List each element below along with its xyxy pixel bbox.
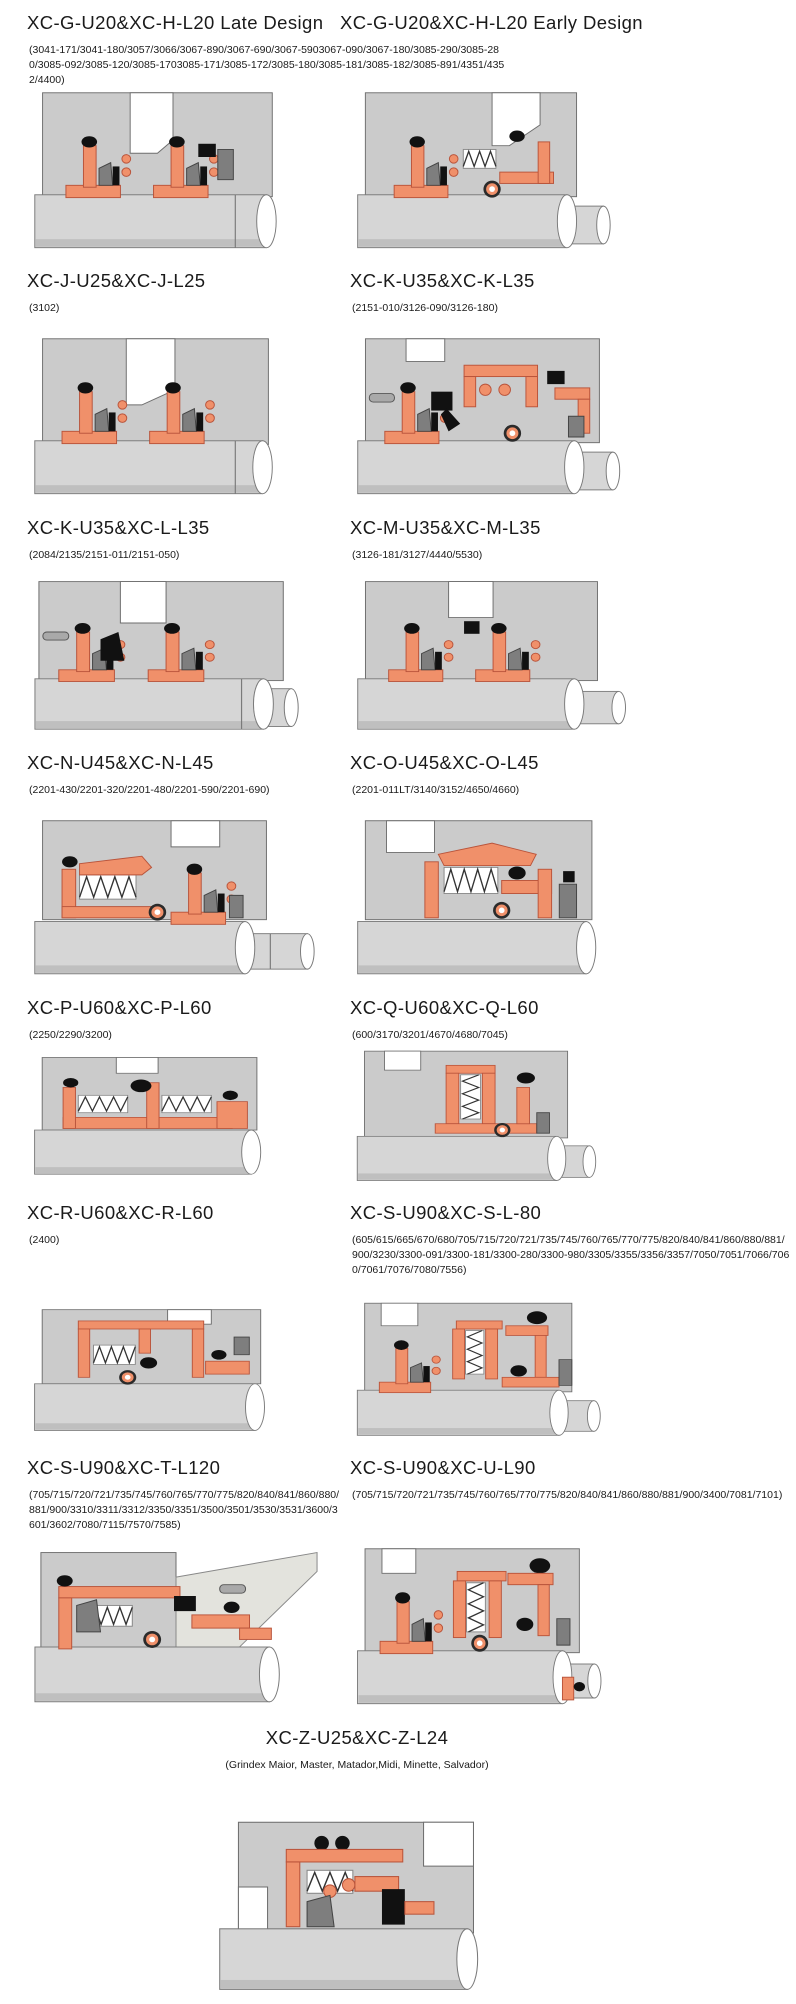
- seal-cross-section-diagram: [27, 1300, 340, 1445]
- section-title: XC-J-U25&XC-J-L25: [27, 270, 340, 292]
- seal-cross-section-diagram: [27, 1545, 340, 1715]
- cell-xc-p: XC-P-U60&XC-P-L60 (2250/2290/3200): [27, 997, 350, 1190]
- model-numbers: (Grindex Maior, Master, Matador,Midi, Mi…: [27, 1758, 687, 1773]
- model-numbers: (2201-011LT/3140/3152/4650/4660): [352, 783, 790, 798]
- model-numbers: (3102): [29, 301, 340, 316]
- cell-xc-q: XC-Q-U60&XC-Q-L60 (600/3170/3201/4670/46…: [350, 997, 790, 1190]
- model-numbers: (2400): [29, 1233, 340, 1248]
- section-title: XC-Q-U60&XC-Q-L60: [350, 997, 790, 1019]
- cell-xc-z: XC-Z-U25&XC-Z-L24 (Grindex Maior, Master…: [27, 1727, 687, 2004]
- section-xc-g-h-l20: XC-G-U20&XC-H-L20 Late Design XC-G-U20&X…: [0, 0, 796, 258]
- seal-cross-section-diagram: [350, 1545, 790, 1715]
- cell-xc-o: XC-O-U45&XC-O-L45 (2201-011LT/3140/3152/…: [350, 752, 790, 985]
- model-numbers-g: (3041-171/3041-180/3057/3066/3067-890/30…: [29, 43, 507, 89]
- section-xc-t-u: XC-S-U90&XC-T-L120 (705/715/720/721/735/…: [0, 1445, 796, 1715]
- section-title: XC-S-U90&XC-T-L120: [27, 1457, 340, 1479]
- model-numbers: (605/615/665/670/680/705/715/720/721/735…: [352, 1233, 790, 1279]
- cell-xc-u-l90: XC-S-U90&XC-U-L90 (705/715/720/721/735/7…: [350, 1457, 790, 1715]
- model-numbers: (2151-010/3126-090/3126-180): [352, 301, 790, 316]
- seal-cross-section-diagram: [27, 1048, 340, 1190]
- cell-xc-s-l80: XC-S-U90&XC-S-L-80 (605/615/665/670/680/…: [350, 1202, 790, 1445]
- section-xc-r-s: XC-R-U60&XC-R-L60 (2400) XC-S-U90&XC-S-L…: [0, 1190, 796, 1445]
- section-title-g-early: XC-G-U20&XC-H-L20 Early Design: [340, 12, 643, 34]
- section-xc-j-k: XC-J-U25&XC-J-L25 (3102) XC-K-U35&XC-K-L…: [0, 258, 796, 505]
- model-numbers: (2201-430/2201-320/2201-480/2201-590/220…: [29, 783, 340, 798]
- cell-xc-m: XC-M-U35&XC-M-L35 (3126-181/3127/4440/55…: [350, 517, 790, 740]
- section-title-g-late: XC-G-U20&XC-H-L20 Late Design: [27, 12, 340, 34]
- section-title: XC-N-U45&XC-N-L45: [27, 752, 340, 774]
- cell-xc-j: XC-J-U25&XC-J-L25 (3102): [27, 270, 350, 505]
- seal-cross-section-diagram: [27, 89, 340, 258]
- model-numbers: (600/3170/3201/4670/4680/7045): [352, 1028, 790, 1043]
- seal-cross-section-diagram: [27, 578, 340, 740]
- row1-titles: XC-G-U20&XC-H-L20 Late Design XC-G-U20&X…: [27, 12, 790, 34]
- section-title: XC-O-U45&XC-O-L45: [350, 752, 790, 774]
- cell-xc-n: XC-N-U45&XC-N-L45 (2201-430/2201-320/220…: [27, 752, 350, 985]
- seal-cross-section-diagram: [350, 1300, 790, 1445]
- seal-cross-section-diagram: [350, 335, 790, 505]
- seal-cross-section-diagram: [27, 817, 340, 985]
- model-numbers: (3126-181/3127/4440/5530): [352, 548, 790, 563]
- seal-cross-section-diagram: [350, 817, 790, 985]
- seal-cross-section-diagram: [350, 89, 790, 258]
- model-numbers: (2084/2135/2151-011/2151-050): [29, 548, 340, 563]
- cell-xc-k-l: XC-K-U35&XC-L-L35 (2084/2135/2151-011/21…: [27, 517, 350, 740]
- section-xc-z: XC-Z-U25&XC-Z-L24 (Grindex Maior, Master…: [0, 1715, 796, 2004]
- model-numbers: (705/715/720/721/735/745/760/765/770/775…: [29, 1488, 340, 1534]
- section-title: XC-M-U35&XC-M-L35: [350, 517, 790, 539]
- section-title: XC-Z-U25&XC-Z-L24: [27, 1727, 687, 1749]
- section-title: XC-P-U60&XC-P-L60: [27, 997, 340, 1019]
- row1-diagrams: [27, 89, 790, 258]
- seal-cross-section-diagram: [27, 335, 340, 505]
- section-title: XC-S-U90&XC-U-L90: [350, 1457, 790, 1479]
- section-title: XC-R-U60&XC-R-L60: [27, 1202, 340, 1224]
- section-xc-p-q: XC-P-U60&XC-P-L60 (2250/2290/3200) XC-Q-…: [0, 985, 796, 1190]
- section-xc-n-o: XC-N-U45&XC-N-L45 (2201-430/2201-320/220…: [0, 740, 796, 985]
- seal-catalog-page: XC-G-U20&XC-H-L20 Late Design XC-G-U20&X…: [0, 0, 796, 2004]
- seal-cross-section-diagram: [350, 578, 790, 740]
- section-title: XC-S-U90&XC-S-L-80: [350, 1202, 790, 1224]
- cell-xc-t-l120: XC-S-U90&XC-T-L120 (705/715/720/721/735/…: [27, 1457, 350, 1715]
- model-numbers: (705/715/720/721/735/745/760/765/770/775…: [352, 1488, 790, 1503]
- seal-cross-section-diagram: [350, 1048, 790, 1190]
- section-title: XC-K-U35&XC-K-L35: [350, 270, 790, 292]
- seal-cross-section-diagram: [201, 1816, 513, 2004]
- section-xc-kl-m: XC-K-U35&XC-L-L35 (2084/2135/2151-011/21…: [0, 505, 796, 740]
- model-numbers: (2250/2290/3200): [29, 1028, 340, 1043]
- cell-xc-r: XC-R-U60&XC-R-L60 (2400): [27, 1202, 350, 1445]
- section-title: XC-K-U35&XC-L-L35: [27, 517, 340, 539]
- cell-xc-k: XC-K-U35&XC-K-L35 (2151-010/3126-090/312…: [350, 270, 790, 505]
